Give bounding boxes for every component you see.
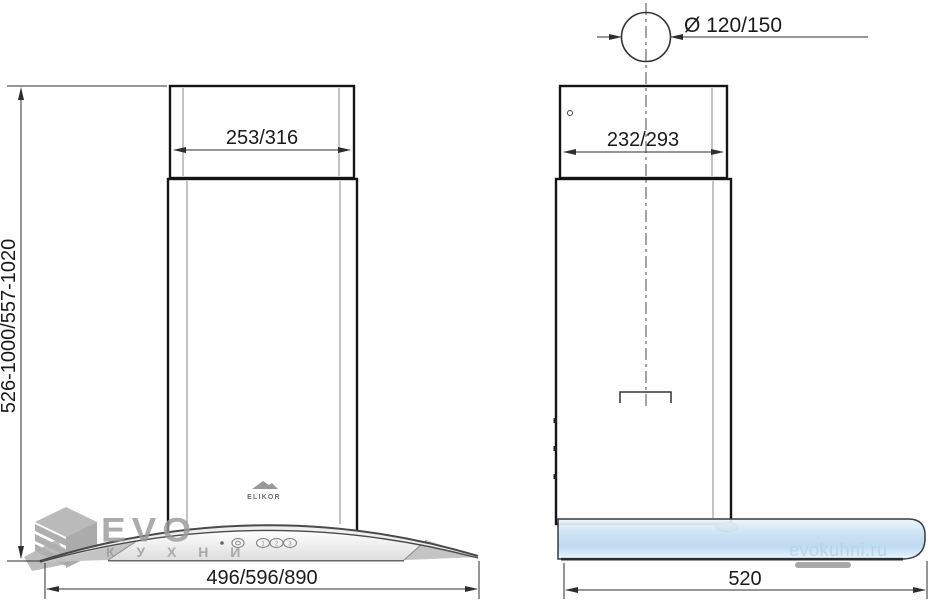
duct-diameter-callout: Ø 120/150 [597,13,868,62]
rear-slot [554,474,557,479]
dim-arrow [565,587,578,593]
dim-arrow [173,147,186,153]
hood-dimension-drawing: 253/316 ELIKOR 1 2 3 [0,0,942,600]
watermark-site-url: evokuhni.ru [789,540,888,561]
brand-label: ELIKOR [247,494,281,501]
side-view: 232/293 [554,3,926,568]
height-range-label: 526-1000/557-1020 [0,239,20,414]
dim-arrow [913,587,926,593]
watermark-subtitle: К У Х Н И [106,544,249,560]
dim-arrow [338,147,351,153]
width-dimension: 496/596/890 [45,561,479,599]
dim-arrow [711,149,724,155]
chimney-depth-label: 232/293 [607,129,679,151]
screw-hole [568,111,573,116]
dim-arrow [670,34,683,40]
technical-drawing-page: 253/316 ELIKOR 1 2 3 [0,0,942,600]
dim-arrow [18,87,24,100]
chimney-width-label: 253/316 [226,127,298,149]
height-dimension: 526-1000/557-1020 [0,86,167,561]
duct-diameter-label: Ø 120/150 [684,14,782,37]
front-hood-body [168,179,357,534]
depth-dimension: 520 [564,561,927,599]
brand-mountain-icon [252,481,278,489]
total-width-label: 496/596/890 [206,567,317,589]
dim-arrow [46,586,59,592]
rear-slot [554,418,557,423]
total-depth-label: 520 [728,568,761,590]
dim-arrow [609,34,622,40]
front-view: 253/316 ELIKOR [168,86,357,534]
dim-arrow [465,586,478,592]
dim-arrow [18,546,24,559]
dim-arrow [563,149,576,155]
rear-slot [554,446,557,451]
side-hood-body [556,179,731,524]
glass-shelf-shadow [795,562,851,568]
